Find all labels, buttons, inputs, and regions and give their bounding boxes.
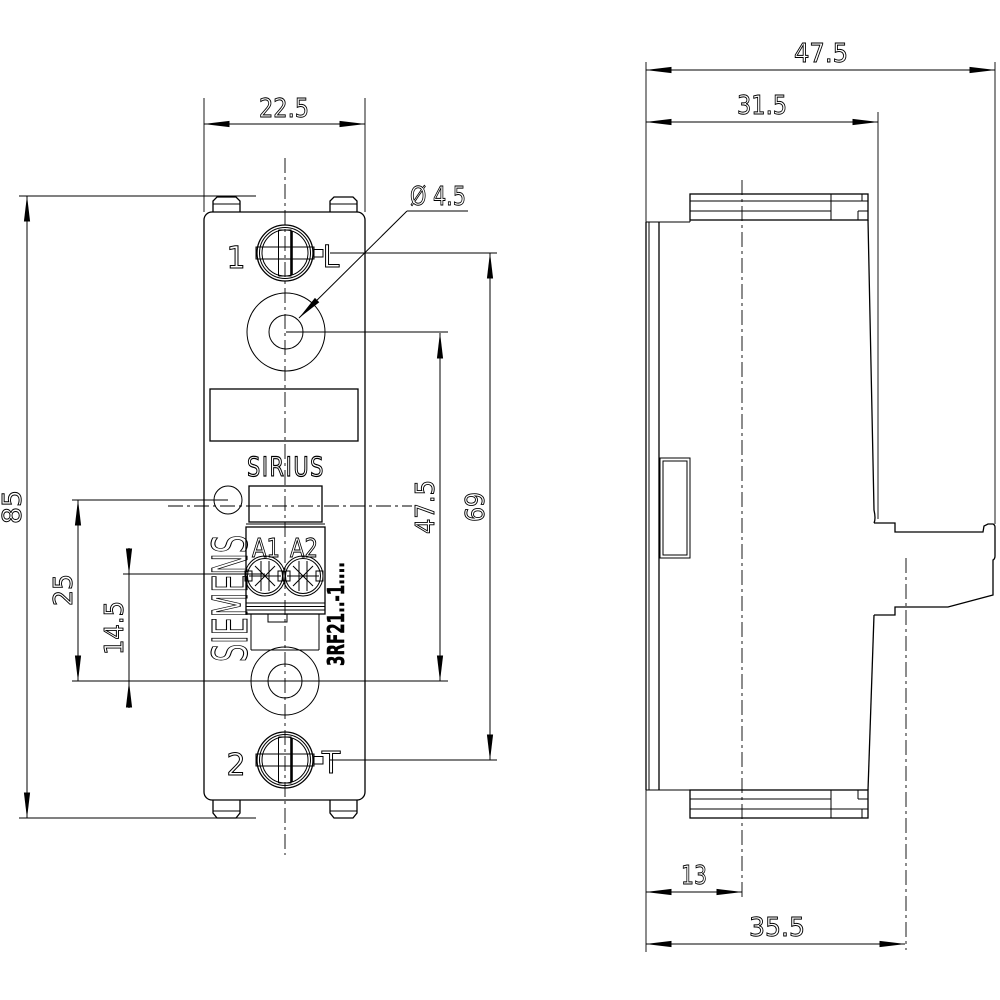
dimension-drawing-svg: SIRIUS SIEMENS A1 A2 (0, 0, 1000, 1000)
rating-plate (210, 389, 358, 441)
terminal-lower-tab (268, 614, 287, 622)
dim-69-text: 69 (461, 492, 491, 522)
side-view: 47.5 31.5 13 35.5 (646, 39, 995, 952)
side-label-recess (660, 458, 690, 558)
screw-crossbar-tab (314, 250, 323, 258)
type-code-text: 3RF21..-1.... (324, 562, 350, 666)
dim-355-text: 35.5 (749, 913, 805, 943)
dim-475-text: 47.5 (411, 480, 441, 534)
sirius-text: SIRIUS (247, 452, 325, 483)
power-screw-top (256, 225, 323, 281)
terminal-2-label: 2 (226, 748, 245, 783)
hole-dia-text: Ø 4.5 (410, 182, 466, 212)
foot-bottom-right (330, 800, 357, 818)
depth-extension-lines (646, 62, 995, 524)
terminal-l-label: L (323, 240, 340, 275)
terminal-1-label: 1 (226, 241, 245, 276)
dim-13-text: 13 (681, 861, 707, 891)
drawing-page: SIRIUS SIEMENS A1 A2 (0, 0, 1000, 1000)
mounting-flange (874, 523, 995, 615)
dim-depth-text: 47.5 (794, 39, 848, 69)
side-dimensions: 47.5 31.5 13 35.5 (646, 39, 995, 952)
dim-body-depth-text: 31.5 (737, 91, 787, 121)
dim-25-text: 25 (49, 574, 79, 606)
height-dim-text: 85 (0, 490, 28, 524)
dim-145-text: 14.5 (100, 601, 130, 655)
height-extension-lines (19, 196, 256, 818)
hole-dia-leader (299, 211, 407, 318)
side-bottom-cap (690, 790, 868, 818)
foot-bottom-left (213, 800, 240, 818)
side-rear-wall-upper (868, 220, 875, 523)
side-top-cap (690, 194, 868, 220)
power-screw-bottom (256, 732, 323, 788)
front-view: SIRIUS SIEMENS A1 A2 (0, 94, 497, 855)
terminal-raised-top (249, 486, 322, 522)
side-front-wall (646, 220, 690, 790)
side-rear-wall-lower (868, 615, 874, 790)
terminal-t-label: T (321, 746, 341, 781)
width-dim-text: 22.5 (259, 94, 309, 124)
